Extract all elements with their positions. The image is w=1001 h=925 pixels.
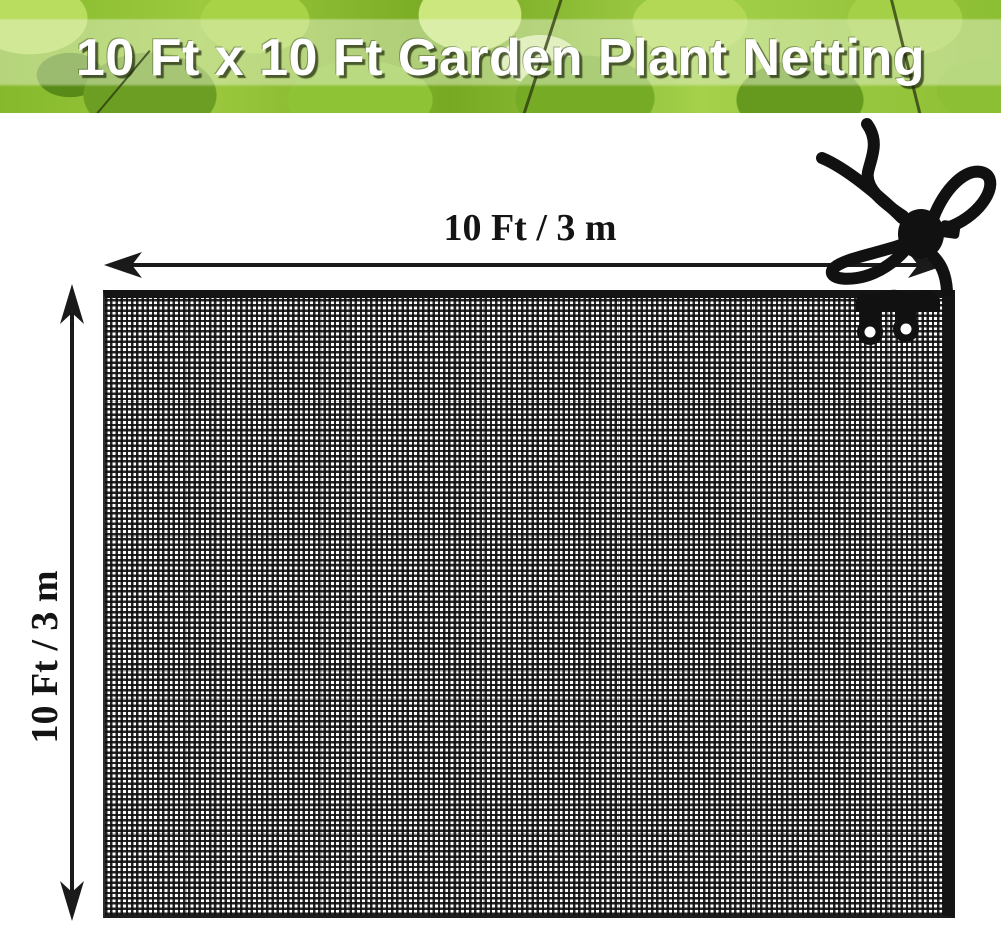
product-image: 10 Ft x 10 Ft Garden Plant Netting 10 Ft… (0, 0, 1001, 925)
width-arrow (104, 252, 946, 278)
annotation-overlay (0, 0, 1001, 925)
height-arrow (60, 284, 84, 921)
hook-clips (856, 290, 940, 345)
cord-lock-toggle (898, 209, 961, 259)
